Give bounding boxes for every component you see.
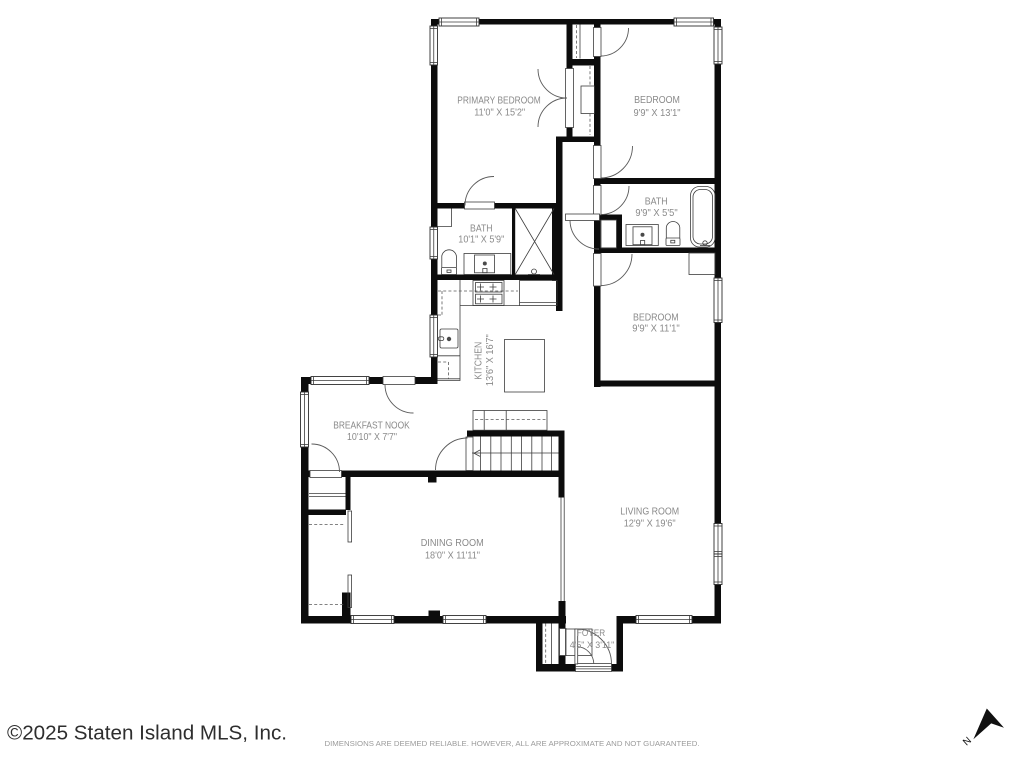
svg-text:DIMENSIONS ARE DEEMED RELIABLE: DIMENSIONS ARE DEEMED RELIABLE. HOWEVER,… xyxy=(325,741,700,748)
svg-text:12'9" X 19'6": 12'9" X 19'6" xyxy=(624,519,676,530)
svg-text:BEDROOM: BEDROOM xyxy=(633,313,679,324)
svg-text:LIVING ROOM: LIVING ROOM xyxy=(620,507,679,518)
svg-text:BATH: BATH xyxy=(470,224,493,235)
svg-text:9'9" X 5'5": 9'9" X 5'5" xyxy=(635,208,678,219)
svg-text:10'1" X 5'9": 10'1" X 5'9" xyxy=(458,234,504,245)
svg-text:4'5" X 3'11": 4'5" X 3'11" xyxy=(570,640,615,650)
svg-text:PRIMARY BEDROOM: PRIMARY BEDROOM xyxy=(457,96,541,107)
svg-text:BATH: BATH xyxy=(645,197,668,208)
svg-text:13'6" X 16'7": 13'6" X 16'7" xyxy=(485,334,496,386)
svg-text:18'0" X 11'11": 18'0" X 11'11" xyxy=(425,551,480,562)
svg-text:KITCHEN: KITCHEN xyxy=(474,342,485,380)
svg-text:11'0" X 15'2": 11'0" X 15'2" xyxy=(474,108,525,119)
svg-text:9'9" X 11'1": 9'9" X 11'1" xyxy=(632,324,680,335)
svg-text:9'9" X 13'1": 9'9" X 13'1" xyxy=(634,108,681,119)
svg-text:DINING ROOM: DINING ROOM xyxy=(421,538,484,549)
svg-text:BEDROOM: BEDROOM xyxy=(634,95,680,106)
svg-text:©2025 Staten Island MLS, Inc.: ©2025 Staten Island MLS, Inc. xyxy=(7,722,287,745)
svg-text:FOYER: FOYER xyxy=(577,628,606,638)
svg-text:10'10" X 7'7": 10'10" X 7'7" xyxy=(347,432,397,443)
svg-text:BREAKFAST NOOK: BREAKFAST NOOK xyxy=(333,421,410,432)
